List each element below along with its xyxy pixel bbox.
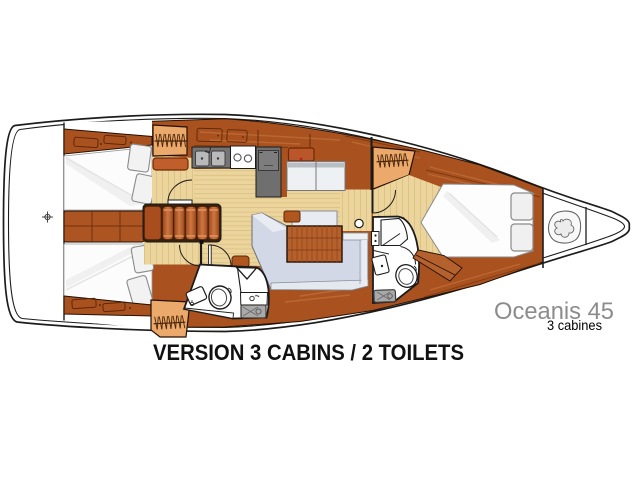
- svg-text:VERSION 3 CABINS / 2 TOILETS: VERSION 3 CABINS / 2 TOILETS: [153, 340, 464, 365]
- svg-text:3 cabines: 3 cabines: [547, 317, 602, 333]
